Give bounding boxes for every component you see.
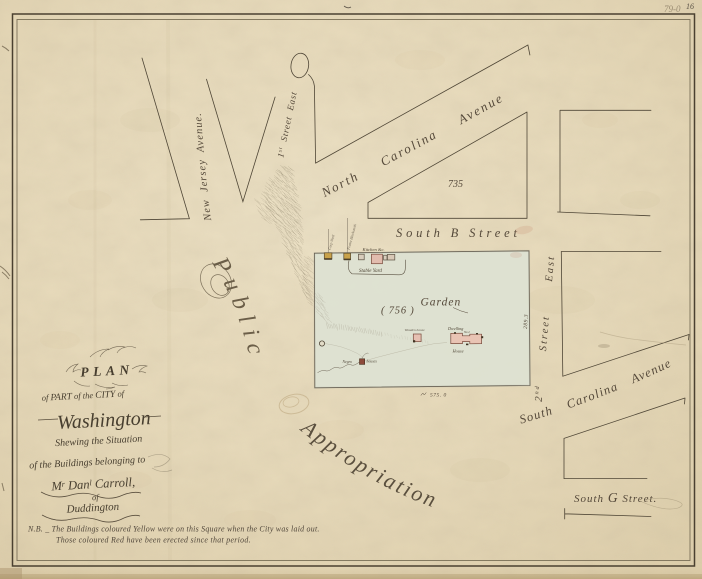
svg-text:Wooden house: Wooden house [405,328,426,332]
svg-text:289.3: 289.3 [523,314,530,329]
svg-text:House: House [452,349,464,354]
svg-text:South B Street: South B Street [396,226,520,240]
svg-text:PLAN: PLAN [80,362,134,380]
svg-text:South G Street.: South G Street. [574,490,657,505]
svg-text:Garden: Garden [421,297,462,309]
svg-text:houses: houses [367,360,378,364]
svg-text:No 2: No 2 [463,330,470,334]
svg-text:735: 735 [448,179,463,190]
svg-text:Kitchen &c.: Kitchen &c. [362,247,385,252]
svg-text:575. 0: 575. 0 [430,393,447,399]
svg-text:Negro: Negro [342,360,352,364]
svg-text:Dwelling: Dwelling [447,326,463,331]
svg-text:( 756 ): ( 756 ) [381,306,415,317]
svg-text:N.B. _ The Buildings coloured: N.B. _ The Buildings coloured Yellow wer… [27,525,320,534]
svg-text:Stable Yard: Stable Yard [359,269,382,274]
svg-text:79-0: 79-0 [664,4,681,14]
svg-text:16: 16 [686,2,694,11]
svg-text:Those coloured Red have been e: Those coloured Red have been erected sin… [56,536,251,545]
